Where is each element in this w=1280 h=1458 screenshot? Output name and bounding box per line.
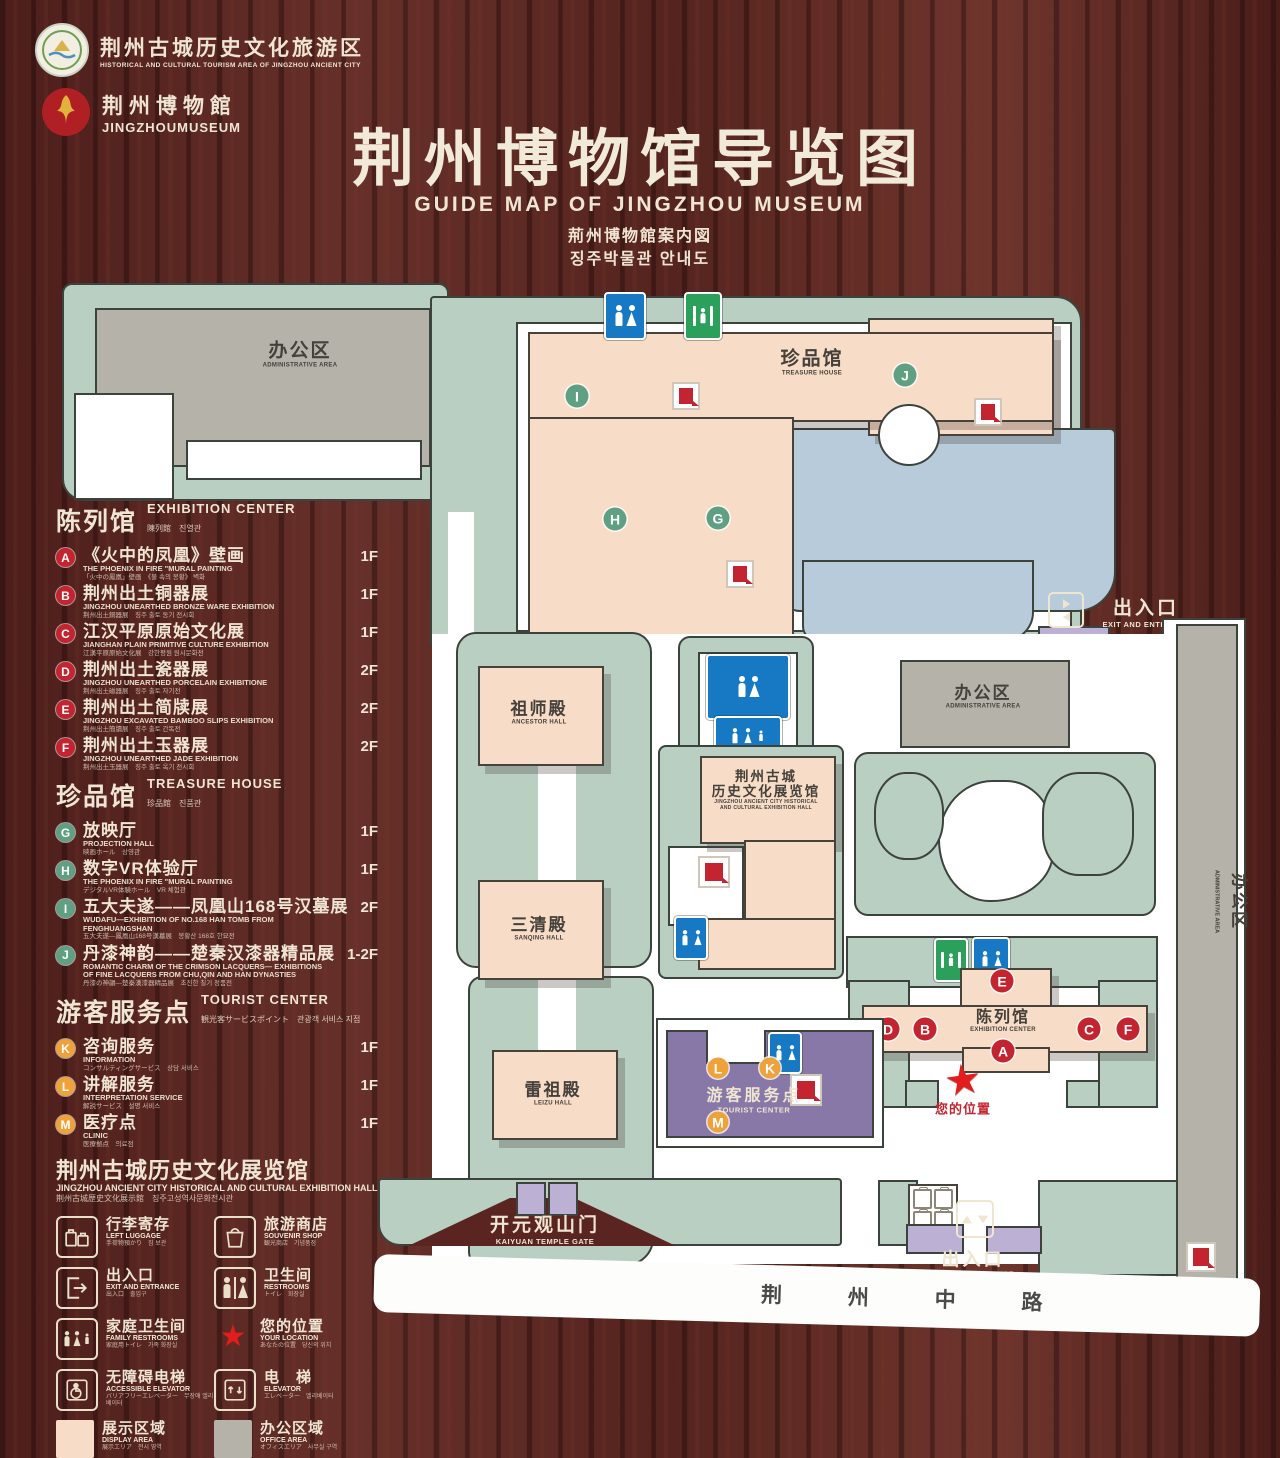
legend-item-text: 荆州出土玉器展 JINGZHOU UNEARTHED JADE EXHIBITI… [83, 737, 238, 771]
legend-item-cn: 《火中的凤凰》壁画 [83, 547, 245, 565]
legend-item-cn: 荆州出土简牍展 [83, 699, 273, 717]
legend-section-title-en: EXHIBITION CENTER [147, 501, 295, 516]
legend-item-text: 数字VR体验厅 THE PHOENIX IN FIRE "MURAL PAINT… [83, 860, 233, 894]
legend-item-sub: 荆州出土簡牘展 징주 출토 간독전 [83, 726, 273, 734]
legend-item-cn: 咨询服务 [83, 1038, 199, 1056]
legend-icon-grid: 行李寄存 LEFT LUGGAGE 手荷物預かり 짐 보관 旅游商店 SOUVE… [56, 1216, 380, 1458]
legend-item-floor: 2F [360, 738, 378, 755]
legend-icon-en: RESTROOMS [264, 1284, 312, 1292]
legend-exit-entrance: 出入口 EXIT AND ENTRANCE 出入口 출입구 [56, 1267, 214, 1309]
legend-item-a: A 《火中的凤凰》壁画 THE PHOENIX IN FIRE "MURAL P… [56, 547, 380, 581]
legend-area-text: 展示区域 DISPLAY AREA 展示エリア 전시 영역 [102, 1420, 166, 1452]
souvenir-shop-icon [214, 1216, 256, 1258]
legend-icon-sub: 手荷物預かり 짐 보관 [106, 1241, 170, 1248]
legend-marker-e: E [56, 700, 75, 719]
map-marker-g: G [707, 507, 730, 530]
legend-section-title-en: TOURIST CENTER [201, 992, 329, 1007]
legend-left-luggage: 行李寄存 LEFT LUGGAGE 手荷物預かり 짐 보관 [56, 1216, 214, 1258]
legend-item-en: WUDAFU—EXHIBITION OF NO.168 HAN TOMB FRO… [83, 916, 323, 933]
legend-item-cn: 数字VR体验厅 [83, 860, 233, 878]
legend-marker-h: H [56, 861, 75, 880]
legend-item-floor: 1F [360, 1039, 378, 1056]
map-lake-cove [878, 404, 940, 466]
legend-marker-i: I [56, 899, 75, 918]
legend-elevator: 电 梯 ELEVATOR エレベーター 엘리베이터 [214, 1369, 372, 1411]
legend-item-sub: 荆州出土磁器展 징주 출토 자기전 [83, 688, 267, 696]
legend-item-floor: 2F [360, 700, 378, 717]
elevator-icon [672, 382, 700, 410]
map-label-kaiyuan-gate: 开元观山门KAIYUAN TEMPLE GATE [490, 1210, 600, 1246]
map-garden-island [1042, 772, 1134, 876]
map-building-exhibition-hall-south [698, 918, 836, 970]
legend-your-location: ★ 您的位置 YOUR LOCATION あなたの位置 당신의 위치 [214, 1318, 372, 1360]
legend-area-en: DISPLAY AREA [102, 1437, 166, 1445]
legend-icon-text: 出入口 EXIT AND ENTRANCE 出入口 출입구 [106, 1267, 179, 1299]
map-area-exhibition-center [1066, 1080, 1100, 1108]
restroom-icon [674, 916, 708, 960]
legend-item-sub: 丹漆の神韻—楚秦漢漆器精品展 초진한 칠기 정품전 [83, 980, 323, 988]
legend-item-sub: コンサルティングサービス 상담 서비스 [83, 1065, 199, 1073]
legend-section-header: 陈列馆 EXHIBITION CENTER 陳列館 진열관 [56, 500, 380, 538]
restroom-icon [706, 654, 790, 720]
legend-section-exhibition-center: 陈列馆 EXHIBITION CENTER 陳列館 진열관A 《火中的凤凰》壁画… [56, 500, 380, 771]
legend-hall-note: 荆州古城历史文化展览馆 JINGZHOU ANCIENT CITY HISTOR… [56, 1158, 380, 1204]
legend-section-title-cn: 珍品馆 [56, 777, 137, 813]
legend-item-en: JINGZHOU EXCAVATED BAMBOO SLIPS EXHIBITI… [83, 717, 273, 726]
exit-entrance-icon [56, 1267, 98, 1309]
legend-icon-sub: 観光商店 기념품점 [264, 1241, 328, 1248]
accessible-elevator-icon [56, 1369, 98, 1411]
legend-marker-b: B [56, 586, 75, 605]
legend-sections: 陈列馆 EXHIBITION CENTER 陳列館 진열관A 《火中的凤凰》壁画… [56, 500, 380, 1148]
legend-item-g: G 放映厅 PROJECTION HALL 映画ホール 상영관 1F [56, 822, 380, 856]
legend-item-text: 五大夫遂——凤凰山168号汉墓展 WUDAFU—EXHIBITION OF NO… [83, 898, 348, 941]
legend-icon-en: YOUR LOCATION [260, 1335, 331, 1343]
legend-marker-f: F [56, 738, 75, 757]
left-luggage-icon [56, 1216, 98, 1258]
exit-entrance-updown-icon [956, 1200, 994, 1238]
legend-section-tourist-center: 游客服务点 TOURIST CENTER 観光客サービスポイント 관광객 서비스… [56, 991, 380, 1148]
legend-item-en: THE PHOENIX IN FIRE "MURAL PAINTING [83, 878, 233, 887]
location-star-icon: ★ [220, 1322, 247, 1352]
legend-icon-cn: 无障碍电梯 [106, 1369, 214, 1386]
legend-item-sub: 解説サービス 설명 서비스 [83, 1103, 183, 1111]
legend-item-en: JINGZHOU UNEARTHED JADE EXHIBITION [83, 755, 238, 764]
legend-marker-l: L [56, 1077, 75, 1096]
legend-hall-note-en: JINGZHOU ANCIENT CITY HISTORICAL AND CUL… [56, 1183, 380, 1194]
legend-item-cn: 荆州出土铜器展 [83, 585, 274, 603]
legend-item-en: INFORMATION [83, 1056, 199, 1065]
legend-section-title-en: TREASURE HOUSE [147, 776, 282, 791]
legend-section-header: 珍品馆 TREASURE HOUSE 珍品館 진품관 [56, 775, 380, 813]
legend-item-sub: 江漢平原原始文化展 강한평원 원시문화전 [83, 650, 269, 658]
legend-item-en: ROMANTIC CHARM OF THE CRIMSON LACQUERS— … [83, 963, 323, 980]
legend-item-floor: 1F [360, 1115, 378, 1132]
legend-icon-en: SOUVENIR SHOP [264, 1233, 328, 1241]
legend-section-title-sub: 珍品館 진품관 [147, 799, 201, 808]
legend-item-en: JINGZHOU UNEARTHED PORCELAIN EXHIBITIONE [83, 679, 267, 688]
legend-section-title-sub: 観光客サービスポイント 관광객 서비스 지점 [201, 1015, 360, 1024]
legend-marker-k: K [56, 1039, 75, 1058]
map-courtyard [186, 440, 422, 480]
restrooms-icon [214, 1267, 256, 1309]
map-marker-j: J [894, 364, 917, 387]
legend-item-floor: 2F [360, 899, 378, 916]
legend-area-cn: 办公区域 [260, 1420, 337, 1437]
map-courtyard [74, 393, 174, 500]
map-marker-a: A [992, 1040, 1015, 1063]
emergency-exit-icon [684, 292, 722, 340]
map-marker-c: C [1078, 1018, 1101, 1041]
map-label-your-location: 您的位置 [935, 1099, 991, 1118]
legend-item-floor: 2F [360, 662, 378, 679]
map-label-admin-middle: 办公区ADMINISTRATIVE AREA [946, 679, 1021, 710]
legend-item-floor: 1F [360, 823, 378, 840]
legend-item-e: E 荆州出土简牍展 JINGZHOU EXCAVATED BAMBOO SLIP… [56, 699, 380, 733]
legend-icon-sub: 出入口 출입구 [106, 1292, 179, 1299]
map-label-treasure-house: 珍品馆TREASURE HOUSE [780, 344, 843, 377]
legend-marker-a: A [56, 548, 75, 567]
legend-family-restrooms: 家庭卫生间 FAMILY RESTROOMS 家庭用トイレ 가족 화장실 [56, 1318, 214, 1360]
map-label-exhibition-center: 陈列馆EXHIBITION CENTER [970, 1003, 1036, 1033]
map-marker-i: I [566, 385, 589, 408]
map-garden-island [874, 772, 944, 860]
legend-item-cn: 放映厅 [83, 822, 154, 840]
map-label-ancestor-hall: 祖师殿ANCESTOR HALL [511, 695, 568, 726]
legend-item-floor: 1-2F [347, 946, 378, 963]
map-marker-e: E [991, 970, 1014, 993]
map-label-admin-topleft: 办公区ADMINISTRATIVE AREA [263, 336, 338, 369]
legend-item-b: B 荆州出土铜器展 JINGZHOU UNEARTHED BRONZE WARE… [56, 585, 380, 619]
legend-section-treasure-house: 珍品馆 TREASURE HOUSE 珍品館 진품관G 放映厅 PROJECTI… [56, 775, 380, 987]
legend-area-text: 办公区域 OFFICE AREA オフィスエリア 사무실 구역 [260, 1420, 337, 1452]
legend-item-sub: 映画ホール 상영관 [83, 849, 154, 857]
legend-item-h: H 数字VR体验厅 THE PHOENIX IN FIRE "MURAL PAI… [56, 860, 380, 894]
legend-icon-en: FAMILY RESTROOMS [106, 1335, 186, 1343]
map-path [448, 512, 474, 644]
legend-item-text: 医疗点 CLINIC 医療拠点 의료점 [83, 1114, 137, 1148]
legend-icon-text: 电 梯 ELEVATOR エレベーター 엘리베이터 [264, 1369, 334, 1401]
legend-section-title-sub: 陳列館 진열관 [147, 524, 201, 533]
legend-icon-en: ELEVATOR [264, 1386, 334, 1394]
legend-icon-sub: あなたの位置 당신의 위치 [260, 1343, 331, 1350]
map-marker-k: K [760, 1058, 781, 1079]
legend-icon-cn: 行李寄存 [106, 1216, 170, 1233]
elevator-icon [214, 1369, 256, 1411]
legend-item-f: F 荆州出土玉器展 JINGZHOU UNEARTHED JADE EXHIBI… [56, 737, 380, 771]
legend-item-cn: 医疗点 [83, 1114, 137, 1132]
legend-display-area: 展示区域 DISPLAY AREA 展示エリア 전시 영역 [56, 1420, 214, 1458]
legend-item-text: 江汉平原原始文化展 JIANGHAN PLAIN PRIMITIVE CULTU… [83, 623, 269, 657]
elevator-icon [974, 398, 1002, 426]
legend-item-cn: 讲解服务 [83, 1076, 183, 1094]
map-area-exhibition-center [905, 1080, 939, 1108]
display-area-swatch [56, 1420, 94, 1458]
legend-icon-cn: 您的位置 [260, 1318, 331, 1335]
legend-item-c: C 江汉平原原始文化展 JIANGHAN PLAIN PRIMITIVE CUL… [56, 623, 380, 657]
legend-sidebar: 陈列馆 EXHIBITION CENTER 陳列館 진열관A 《火中的凤凰》壁画… [56, 500, 380, 1458]
legend-item-k: K 咨询服务 INFORMATION コンサルティングサービス 상담 서비스 1… [56, 1038, 380, 1072]
legend-item-sub: 「火中の鳳凰」壁画 《불 속의 봉황》 벽화 [83, 574, 245, 582]
legend-section-title-cn: 陈列馆 [56, 502, 137, 538]
legend-area-en: OFFICE AREA [260, 1437, 337, 1445]
legend-item-floor: 1F [360, 1077, 378, 1094]
legend-item-cn: 荆州出土瓷器展 [83, 661, 267, 679]
legend-item-text: 放映厅 PROJECTION HALL 映画ホール 상영관 [83, 822, 154, 856]
legend-item-text: 《火中的凤凰》壁画 THE PHOENIX IN FIRE "MURAL PAI… [83, 547, 245, 581]
legend-souvenir-shop: 旅游商店 SOUVENIR SHOP 観光商店 기념품점 [214, 1216, 372, 1258]
legend-hall-note-cn: 荆州古城历史文化展览馆 [56, 1158, 380, 1183]
map-label-sanqing-hall: 三清殿SANQING HALL [511, 911, 568, 942]
legend-item-cn: 丹漆神韵——楚秦汉漆器精品展 [83, 945, 335, 963]
legend-icon-text: 旅游商店 SOUVENIR SHOP 観光商店 기념품점 [264, 1216, 328, 1248]
legend-item-en: JINGZHOU UNEARTHED BRONZE WARE EXHIBITIO… [83, 603, 274, 612]
legend-item-text: 咨询服务 INFORMATION コンサルティングサービス 상담 서비스 [83, 1038, 199, 1072]
legend-icon-en: ACCESSIBLE ELEVATOR [106, 1386, 214, 1394]
map-path [538, 974, 576, 1054]
map-building-treasure-house-west [528, 417, 794, 636]
legend-restrooms: 卫生间 RESTROOMS トイレ 화장실 [214, 1267, 372, 1309]
legend-item-text: 荆州出土瓷器展 JINGZHOU UNEARTHED PORCELAIN EXH… [83, 661, 267, 695]
map-lake [802, 560, 1034, 642]
legend-marker-d: D [56, 662, 75, 681]
legend-marker-g: G [56, 823, 75, 842]
legend-icon-sub: トイレ 화장실 [264, 1292, 312, 1299]
legend-icon-sub: エレベーター 엘리베이터 [264, 1394, 334, 1401]
map-label-admin-right: 办公区 ADMINISTRATIVE AREA [1211, 832, 1254, 972]
map-marker-b: B [914, 1018, 937, 1041]
legend-icon-text: 家庭卫生间 FAMILY RESTROOMS 家庭用トイレ 가족 화장실 [106, 1318, 186, 1350]
legend-marker-c: C [56, 624, 75, 643]
legend-item-floor: 1F [360, 861, 378, 878]
legend-item-en: CLINIC [83, 1132, 137, 1141]
legend-icon-cn: 电 梯 [264, 1369, 334, 1386]
legend-icon-text: 卫生间 RESTROOMS トイレ 화장실 [264, 1267, 312, 1299]
legend-item-text: 荆州出土铜器展 JINGZHOU UNEARTHED BRONZE WARE E… [83, 585, 274, 619]
map-marker-f: F [1117, 1018, 1140, 1041]
legend-item-text: 丹漆神韵——楚秦汉漆器精品展 ROMANTIC CHARM OF THE CRI… [83, 945, 335, 988]
legend-item-i: I 五大夫遂——凤凰山168号汉墓展 WUDAFU—EXHIBITION OF … [56, 898, 380, 941]
legend-item-en: INTERPRETATION SERVICE [83, 1094, 183, 1103]
office-area-swatch [214, 1420, 252, 1458]
legend-office-area: 办公区域 OFFICE AREA オフィスエリア 사무실 구역 [214, 1420, 372, 1458]
legend-icon-cn: 家庭卫生间 [106, 1318, 186, 1335]
your-location-icon: ★ [214, 1318, 252, 1356]
map-garden-pond [938, 780, 1054, 902]
legend-item-j: J 丹漆神韵——楚秦汉漆器精品展 ROMANTIC CHARM OF THE C… [56, 945, 380, 988]
legend-marker-m: M [56, 1115, 75, 1134]
exit-entrance-icon [1048, 592, 1084, 628]
legend-item-en: PROJECTION HALL [83, 840, 154, 849]
your-location-star-icon: ★ [941, 1057, 984, 1104]
legend-item-text: 荆州出土简牍展 JINGZHOU EXCAVATED BAMBOO SLIPS … [83, 699, 273, 733]
map-area-south-east [1038, 1180, 1178, 1276]
legend-icon-sub: 家庭用トイレ 가족 화장실 [106, 1343, 186, 1350]
legend-icon-text: 行李寄存 LEFT LUGGAGE 手荷物預かり 짐 보관 [106, 1216, 170, 1248]
legend-hall-note-sub: 荆州古城歴史文化展示館 징주고성역사문화전시관 [56, 1194, 380, 1204]
legend-item-floor: 1F [360, 624, 378, 641]
legend-item-sub: 荆州出土玉器展 징주 출토 옥기 전시회 [83, 764, 238, 772]
legend-item-sub: 医療拠点 의료점 [83, 1141, 137, 1149]
legend-icon-en: LEFT LUGGAGE [106, 1233, 170, 1241]
legend-item-floor: 1F [360, 586, 378, 603]
elevator-icon [1186, 1242, 1216, 1272]
legend-icon-cn: 卫生间 [264, 1267, 312, 1284]
restroom-icon [604, 292, 646, 340]
map-building-exhibition-hall-wing [744, 840, 836, 930]
legend-icon-en: EXIT AND ENTRANCE [106, 1284, 179, 1292]
legend-section-title-cn: 游客服务点 [56, 993, 191, 1029]
legend-area-cn: 展示区域 [102, 1420, 166, 1437]
legend-item-sub: 荆州出土銅器展 징주 출토 동기 전시회 [83, 612, 274, 620]
legend-item-sub: デジタルVR体験ホール VR 체험관 [83, 887, 233, 895]
map-path [538, 762, 576, 884]
legend-item-d: D 荆州出土瓷器展 JINGZHOU UNEARTHED PORCELAIN E… [56, 661, 380, 695]
legend-item-en: THE PHOENIX IN FIRE "MURAL PAINTING [83, 565, 245, 574]
elevator-icon [726, 560, 754, 588]
legend-item-cn: 荆州出土玉器展 [83, 737, 238, 755]
legend-section-header: 游客服务点 TOURIST CENTER 観光客サービスポイント 관광객 서비스… [56, 991, 380, 1029]
legend-item-m: M 医疗点 CLINIC 医療拠点 의료점 1F [56, 1114, 380, 1148]
legend-icon-cn: 旅游商店 [264, 1216, 328, 1233]
legend-icon-text: 您的位置 YOUR LOCATION あなたの位置 당신의 위치 [260, 1318, 331, 1350]
elevator-icon [698, 856, 730, 888]
legend-item-sub: 五大夫遂—鳳凰山168号漢墓展 봉황산 168호 한묘전 [83, 933, 323, 941]
legend-icon-cn: 出入口 [106, 1267, 179, 1284]
map-marker-m: M [708, 1112, 729, 1133]
legend-item-floor: 1F [360, 548, 378, 565]
legend-accessible-elevator: 无障碍电梯 ACCESSIBLE ELEVATOR バリアフリーエレベーター 무… [56, 1369, 214, 1411]
map-label-exhibition-hall: 荆州古城 历史文化展览馆 JINGZHOU ANCIENT CITY HISTO… [712, 769, 821, 811]
legend-item-en: JIANGHAN PLAIN PRIMITIVE CULTURE EXHIBIT… [83, 641, 269, 650]
legend-item-cn: 五大夫遂——凤凰山168号汉墓展 [83, 898, 348, 916]
map-marker-l: L [708, 1058, 729, 1079]
map-label-leizu-hall: 雷祖殿LEIZU HALL [525, 1076, 582, 1107]
legend-icon-text: 无障碍电梯 ACCESSIBLE ELEVATOR バリアフリーエレベーター 무… [106, 1369, 214, 1408]
map-label-road: 荆 州 中 路 [561, 1273, 1073, 1317]
legend-item-text: 讲解服务 INTERPRETATION SERVICE 解説サービス 설명 서비… [83, 1076, 183, 1110]
legend-item-cn: 江汉平原原始文化展 [83, 623, 269, 641]
legend-icon-sub: バリアフリーエレベーター 무장애 엘리베이터 [106, 1394, 214, 1408]
map-marker-h: H [604, 508, 627, 531]
map-label-tourist-center: 游客服务点TOURIST CENTER [706, 1082, 801, 1115]
family-restrooms-icon [56, 1318, 98, 1360]
legend-marker-j: J [56, 946, 75, 965]
legend-item-l: L 讲解服务 INTERPRETATION SERVICE 解説サービス 설명 … [56, 1076, 380, 1110]
